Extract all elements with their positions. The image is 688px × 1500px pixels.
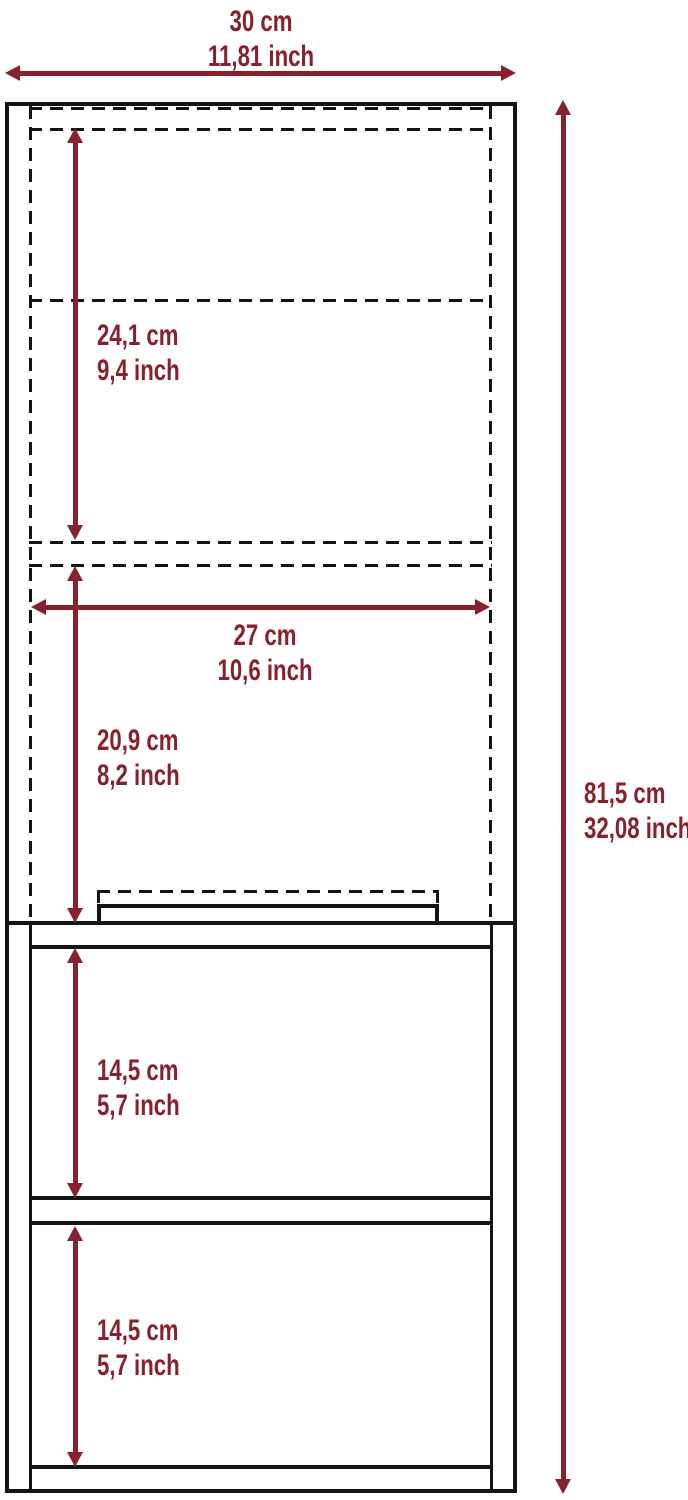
door-outline-right-dashed: [489, 106, 492, 921]
door-outline-left-dashed: [29, 106, 32, 921]
door-top-rail-dashed: [29, 128, 492, 131]
lower-door-height-label: 20,9 cm 8,2 inch: [97, 723, 180, 793]
upper-shelf-space-cm: 14,5 cm: [97, 1053, 180, 1088]
inner-width-label: 27 cm 10,6 inch: [154, 618, 376, 688]
right-side-panel-inner-line: [490, 925, 493, 1489]
overall-width-label: 30 cm 11,81 inch: [150, 4, 372, 74]
lower-shelf-space-arrow: [67, 1226, 83, 1467]
overall-height-arrow: [555, 100, 571, 1494]
inner-width-arrow: [31, 599, 490, 615]
overall-height-inch: 32,08 inch: [584, 811, 688, 846]
arrow-down-head-icon: [67, 908, 83, 923]
door-outline-top-dashed: [29, 107, 492, 110]
door-mid-rail-upper-dashed: [29, 541, 492, 544]
door-mid-rail-lower-dashed: [29, 564, 492, 567]
furniture-dimension-diagram: 30 cm 11,81 inch 24,1 cm 9,4 inch: [0, 0, 688, 1500]
lower-shelf-space-label: 14,5 cm 5,7 inch: [97, 1313, 180, 1383]
door-shelf-dashed: [29, 299, 492, 302]
upper-door-height-label: 24,1 cm 9,4 inch: [97, 318, 180, 388]
top-shelf-line: [29, 945, 493, 949]
upper-shelf-space-arrow: [67, 948, 83, 1198]
overall-height-label: 81,5 cm 32,08 inch: [584, 776, 688, 846]
overall-height-cm: 81,5 cm: [584, 776, 688, 811]
inner-width-cm: 27 cm: [154, 618, 376, 653]
middle-shelf-top-line: [29, 1196, 493, 1200]
left-side-panel-inner-line: [29, 925, 32, 1489]
lower-door-height-arrow: [67, 566, 83, 923]
arrow-down-head-icon: [67, 1183, 83, 1198]
lower-door-height-inch: 8,2 inch: [97, 758, 180, 793]
arrow-down-head-icon: [555, 1479, 571, 1494]
arrow-down-head-icon: [67, 1452, 83, 1467]
arrow-right-head-icon: [475, 599, 490, 615]
bottom-shelf-line: [29, 1465, 493, 1469]
upper-door-height-arrow: [67, 128, 83, 540]
lower-shelf-space-inch: 5,7 inch: [97, 1348, 180, 1383]
upper-door-height-cm: 24,1 cm: [97, 318, 180, 353]
inner-width-inch: 10,6 inch: [154, 653, 376, 688]
overall-width-cm: 30 cm: [150, 4, 372, 39]
overall-width-arrow: [5, 65, 516, 81]
tray-outline-top-dashed: [97, 890, 439, 893]
arrow-right-head-icon: [501, 65, 516, 81]
lower-shelf-space-cm: 14,5 cm: [97, 1313, 180, 1348]
middle-shelf-bottom-line: [29, 1221, 493, 1225]
upper-shelf-space-label: 14,5 cm 5,7 inch: [97, 1053, 180, 1123]
upper-shelf-space-inch: 5,7 inch: [97, 1088, 180, 1123]
upper-door-height-inch: 9,4 inch: [97, 353, 180, 388]
lower-door-height-cm: 20,9 cm: [97, 723, 180, 758]
arrow-down-head-icon: [67, 525, 83, 540]
